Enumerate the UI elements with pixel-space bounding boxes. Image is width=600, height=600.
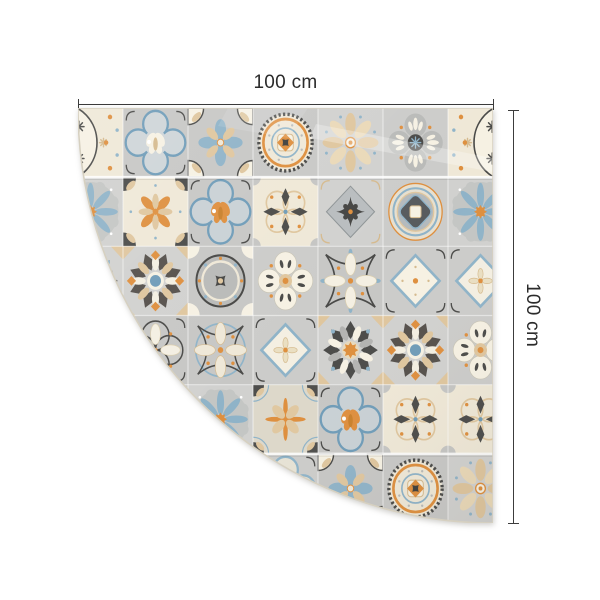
height-dimension-label: 100 cm — [521, 108, 543, 523]
height-dimension-tick-top — [508, 110, 519, 111]
width-dimension-tick-right — [493, 99, 494, 110]
height-dimension-tick-bottom — [508, 523, 519, 524]
quarter-circle-tile-mat-photo — [78, 108, 493, 523]
width-dimension-label: 100 cm — [78, 72, 493, 94]
height-dimension-line — [513, 110, 514, 524]
product-dimension-diagram: 100 cm 100 cm — [0, 0, 600, 600]
tile-grid — [78, 108, 493, 523]
width-dimension-line — [78, 104, 494, 105]
